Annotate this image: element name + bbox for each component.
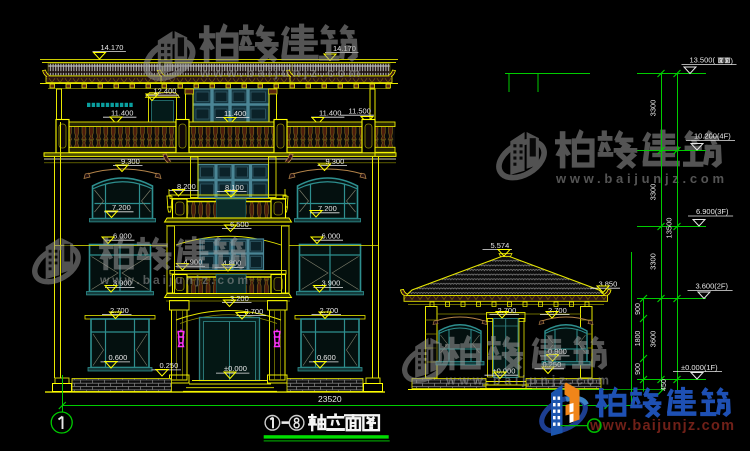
svg-text:0.600: 0.600 bbox=[109, 353, 128, 362]
svg-text:11.400: 11.400 bbox=[111, 108, 133, 117]
svg-text:3300: 3300 bbox=[649, 184, 658, 201]
svg-text:1800: 1800 bbox=[635, 331, 642, 347]
svg-text:11.400: 11.400 bbox=[319, 108, 341, 117]
svg-text:13500: 13500 bbox=[665, 218, 674, 239]
svg-text:3.600(2F): 3.600(2F) bbox=[696, 282, 729, 291]
svg-text:13.500(: 13.500( bbox=[690, 56, 716, 65]
svg-text:9.300: 9.300 bbox=[121, 157, 140, 166]
svg-text:11.500: 11.500 bbox=[349, 106, 371, 115]
svg-text:6.900(3F): 6.900(3F) bbox=[696, 207, 729, 216]
svg-text:3.200: 3.200 bbox=[230, 294, 249, 303]
svg-text:2.700: 2.700 bbox=[548, 306, 567, 315]
svg-text:0.250: 0.250 bbox=[160, 361, 179, 370]
svg-text:14.170: 14.170 bbox=[101, 43, 124, 52]
svg-text:23520: 23520 bbox=[318, 394, 342, 404]
svg-text:5.574: 5.574 bbox=[491, 241, 510, 250]
svg-text:2.700: 2.700 bbox=[498, 306, 517, 315]
svg-text:900: 900 bbox=[635, 363, 642, 375]
svg-text:±0.000(1F): ±0.000(1F) bbox=[681, 363, 718, 372]
svg-text:450: 450 bbox=[661, 379, 668, 391]
svg-text:0.600: 0.600 bbox=[317, 353, 336, 362]
svg-text:900: 900 bbox=[635, 303, 642, 315]
svg-text:2.700: 2.700 bbox=[110, 306, 129, 315]
svg-text:11.400: 11.400 bbox=[224, 109, 246, 118]
svg-text:6.000: 6.000 bbox=[322, 231, 341, 240]
svg-text:10.200(4F): 10.200(4F) bbox=[694, 132, 731, 141]
svg-text:3600: 3600 bbox=[649, 331, 658, 348]
svg-text:2.700: 2.700 bbox=[320, 306, 339, 315]
svg-text:3300: 3300 bbox=[649, 100, 658, 117]
svg-text:6.500: 6.500 bbox=[230, 220, 249, 229]
svg-text:3300: 3300 bbox=[649, 253, 658, 270]
svg-text:www.baijunjz.com: www.baijunjz.com bbox=[589, 418, 734, 434]
svg-text:2.700: 2.700 bbox=[245, 307, 264, 316]
